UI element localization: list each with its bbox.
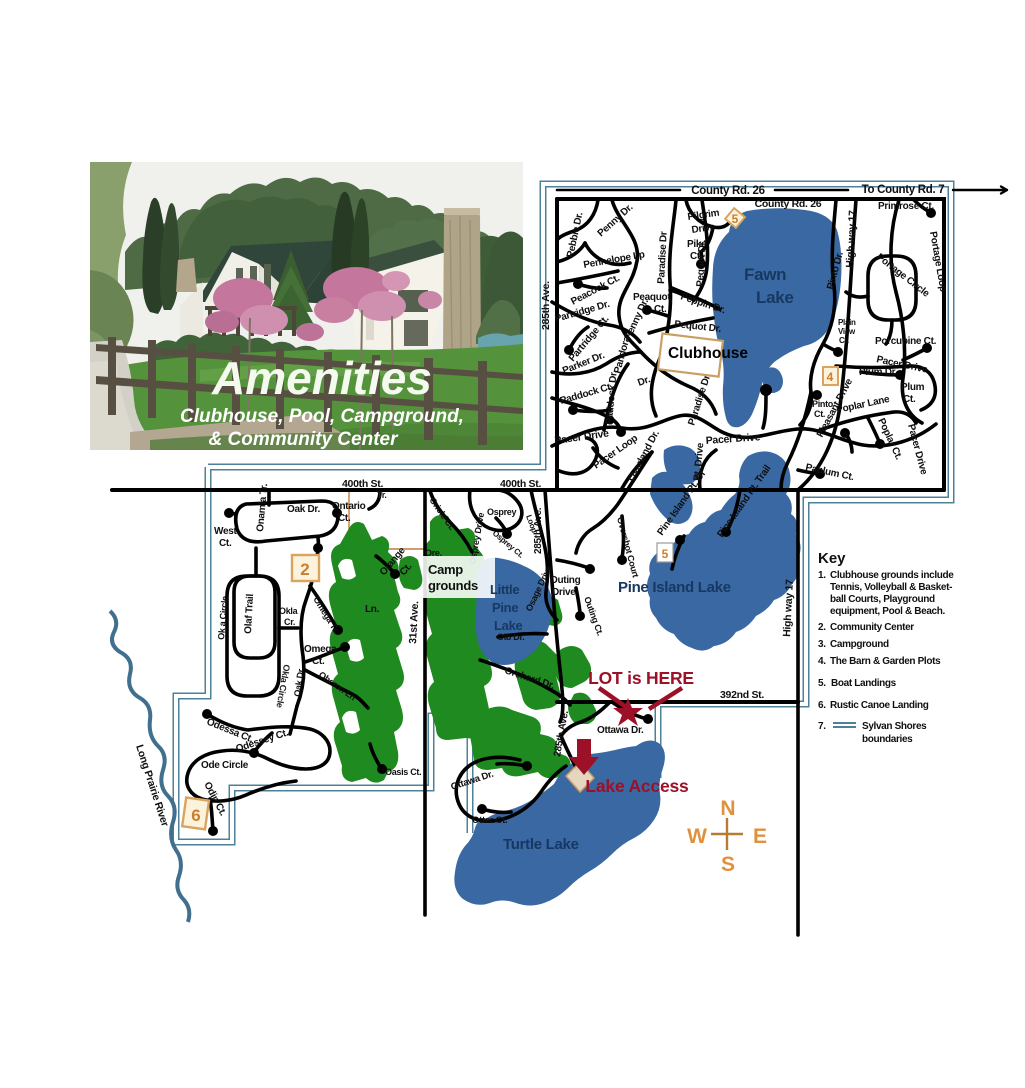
svg-text:boundaries: boundaries	[862, 734, 913, 745]
svg-text:Outing: Outing	[550, 575, 581, 586]
svg-text:N: N	[720, 797, 735, 820]
svg-text:grounds: grounds	[428, 578, 478, 593]
svg-text:31st Ave.: 31st Ave.	[407, 601, 421, 645]
svg-text:Ode Circle: Ode Circle	[201, 760, 249, 771]
svg-text:400th St.: 400th St.	[342, 478, 383, 490]
svg-text:Plum: Plum	[901, 382, 925, 393]
svg-text:Rustic Canoe Landing: Rustic Canoe Landing	[830, 700, 929, 711]
svg-text:Ct.: Ct.	[903, 394, 916, 405]
svg-text:Cr.: Cr.	[284, 617, 295, 627]
svg-text:Ct.: Ct.	[654, 304, 667, 315]
svg-text:Osprey: Osprey	[487, 507, 517, 517]
svg-text:Campground: Campground	[830, 639, 889, 650]
svg-text:Okla: Okla	[279, 606, 299, 616]
svg-text:285th Ave.: 285th Ave.	[540, 281, 552, 330]
svg-text:Key: Key	[818, 550, 846, 567]
svg-text:Ct.: Ct.	[839, 336, 849, 345]
svg-text:5.: 5.	[818, 678, 826, 689]
svg-text:7.: 7.	[818, 721, 826, 732]
svg-text:Lake: Lake	[494, 618, 523, 633]
svg-text:4: 4	[827, 370, 834, 384]
svg-text:Porcupine Ct.: Porcupine Ct.	[875, 336, 937, 347]
svg-text:Pine Island Lake: Pine Island Lake	[618, 579, 731, 596]
svg-text:West: West	[214, 526, 237, 537]
svg-text:Otter Ct.: Otter Ct.	[472, 815, 507, 826]
svg-text:2.: 2.	[818, 622, 826, 633]
svg-text:The Barn & Garden Plots: The Barn & Garden Plots	[830, 656, 941, 667]
svg-text:Primrose Ct.: Primrose Ct.	[878, 201, 934, 212]
svg-text:Tennis, Volleyball & Basket-: Tennis, Volleyball & Basket-	[830, 582, 952, 593]
svg-text:Lake Access: Lake Access	[585, 776, 689, 796]
svg-text:Sylvan Shores: Sylvan Shores	[862, 721, 927, 732]
svg-text:Amenities: Amenities	[211, 352, 432, 404]
svg-text:To County Rd. 7: To County Rd. 7	[862, 184, 945, 196]
svg-text:Ottawa Dr.: Ottawa Dr.	[597, 725, 644, 736]
svg-text:Drive: Drive	[552, 587, 576, 598]
svg-text:1.: 1.	[818, 570, 826, 581]
svg-text:W: W	[687, 825, 707, 848]
svg-text:S: S	[721, 853, 735, 876]
svg-text:6: 6	[191, 806, 200, 825]
svg-text:Tr.: Tr.	[377, 490, 387, 500]
svg-text:Oasis Ct.: Oasis Ct.	[385, 767, 421, 777]
svg-text:Turtle Lake: Turtle Lake	[503, 836, 579, 853]
svg-text:Ct.: Ct.	[338, 513, 351, 524]
svg-text:Plain: Plain	[838, 318, 856, 327]
svg-text:View: View	[838, 327, 856, 336]
svg-text:Lake: Lake	[756, 288, 794, 307]
svg-text:Boat Landings: Boat Landings	[831, 678, 897, 689]
svg-text:392nd St.: 392nd St.	[720, 689, 764, 701]
svg-text:LOT is HERE: LOT is HERE	[588, 668, 694, 688]
svg-text:4.: 4.	[818, 656, 826, 667]
svg-text:Little: Little	[490, 582, 519, 597]
svg-text:Ct.: Ct.	[219, 538, 232, 549]
svg-text:6.: 6.	[818, 700, 826, 711]
svg-text:Clubhouse grounds include: Clubhouse grounds include	[830, 570, 954, 581]
svg-text:Ln.: Ln.	[365, 604, 380, 615]
svg-text:Olaf Trail: Olaf Trail	[243, 593, 256, 634]
svg-text:Clubhouse, Pool, Campground,: Clubhouse, Pool, Campground,	[180, 406, 464, 427]
svg-text:Omega: Omega	[304, 644, 337, 655]
svg-text:3.: 3.	[818, 639, 826, 650]
svg-text:2: 2	[300, 560, 309, 579]
svg-text:Ontario: Ontario	[332, 501, 366, 512]
svg-text:Oak Dr.: Oak Dr.	[287, 504, 320, 515]
svg-text:County Rd. 26: County Rd. 26	[691, 185, 764, 197]
svg-text:Olb Dr.: Olb Dr.	[497, 632, 524, 642]
svg-text:Community Center: Community Center	[830, 622, 914, 633]
svg-text:400th St.: 400th St.	[500, 478, 541, 490]
svg-text:& Community Center: & Community Center	[209, 429, 400, 450]
svg-text:ball Courts, Playground: ball Courts, Playground	[830, 594, 935, 605]
svg-text:Clubhouse: Clubhouse	[668, 345, 748, 362]
svg-text:Pine: Pine	[492, 600, 518, 615]
svg-text:Camp: Camp	[428, 562, 463, 577]
svg-text:Peaquot: Peaquot	[633, 292, 671, 303]
svg-text:Ct.: Ct.	[312, 656, 325, 667]
svg-text:5: 5	[662, 547, 669, 561]
svg-text:Fawn: Fawn	[744, 265, 786, 284]
svg-text:5: 5	[732, 212, 739, 226]
svg-text:equipment, Pool & Beach.: equipment, Pool & Beach.	[830, 606, 946, 617]
svg-text:County Rd. 26: County Rd. 26	[755, 198, 822, 210]
svg-text:E: E	[753, 825, 767, 848]
svg-text:Plum Dr.: Plum Dr.	[859, 367, 898, 378]
